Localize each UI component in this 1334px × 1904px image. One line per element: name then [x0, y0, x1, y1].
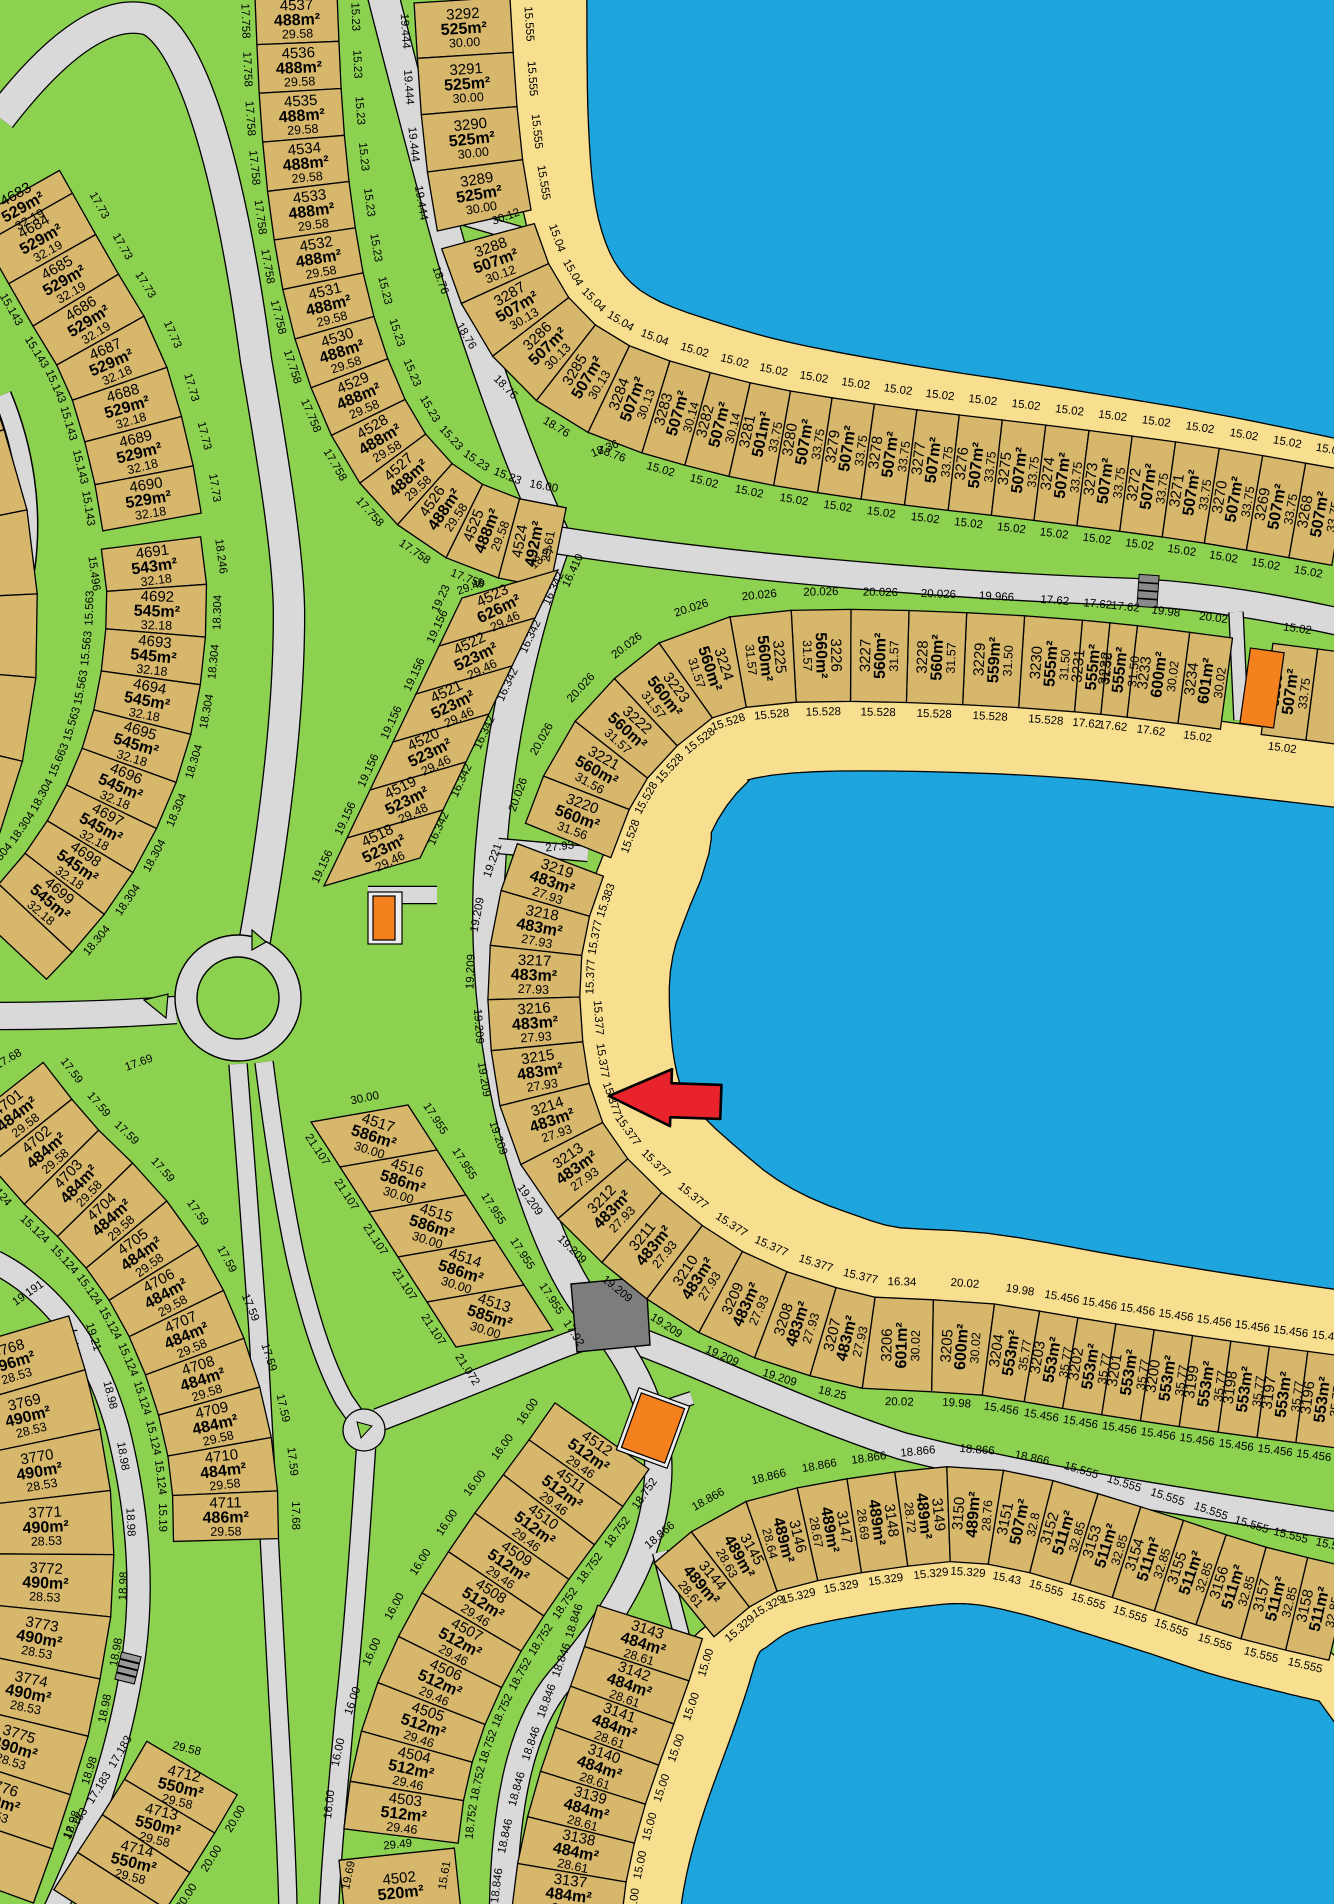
svg-text:29.58: 29.58 [282, 26, 314, 41]
svg-text:27.93: 27.93 [520, 1029, 552, 1045]
svg-text:19.444: 19.444 [398, 13, 412, 49]
svg-text:15.555: 15.555 [525, 61, 539, 97]
svg-text:15.00: 15.00 [626, 1888, 641, 1904]
svg-text:17.758: 17.758 [243, 101, 257, 137]
svg-text:30.02: 30.02 [967, 1332, 983, 1364]
svg-text:15.329: 15.329 [950, 1566, 986, 1581]
svg-text:15.528: 15.528 [806, 706, 841, 719]
svg-text:31.50: 31.50 [1000, 645, 1016, 677]
svg-text:31.50: 31.50 [1098, 652, 1115, 684]
svg-text:15.377: 15.377 [591, 1000, 605, 1036]
svg-text:20.026: 20.026 [921, 588, 957, 601]
svg-text:20.02: 20.02 [950, 1277, 980, 1291]
svg-text:28.76: 28.76 [979, 1499, 995, 1531]
svg-text:17.758: 17.758 [240, 51, 254, 87]
svg-text:30.00: 30.00 [449, 35, 481, 51]
svg-text:18.866: 18.866 [959, 1443, 995, 1458]
svg-text:18.304: 18.304 [211, 594, 224, 630]
svg-text:28.53: 28.53 [29, 1589, 61, 1605]
svg-text:29.58: 29.58 [210, 1524, 242, 1538]
svg-text:15.555: 15.555 [522, 6, 536, 42]
svg-text:30.02: 30.02 [908, 1330, 923, 1362]
svg-text:30.00: 30.00 [452, 90, 484, 106]
svg-text:18.98: 18.98 [117, 1571, 130, 1600]
svg-text:19.209: 19.209 [464, 954, 477, 990]
svg-text:19.98: 19.98 [942, 1397, 972, 1411]
svg-text:31.50: 31.50 [1057, 649, 1073, 681]
svg-text:19.209: 19.209 [471, 1008, 485, 1044]
svg-text:15.528: 15.528 [916, 708, 952, 721]
svg-text:17.68: 17.68 [289, 1501, 301, 1530]
svg-text:20.02: 20.02 [885, 1396, 914, 1409]
svg-text:19.444: 19.444 [401, 69, 415, 106]
svg-text:27.93: 27.93 [517, 982, 549, 997]
svg-text:17.62: 17.62 [1040, 594, 1070, 608]
svg-text:15.23: 15.23 [348, 2, 361, 31]
svg-text:28.53: 28.53 [30, 1533, 62, 1548]
svg-text:20.026: 20.026 [803, 586, 838, 599]
svg-text:29.58: 29.58 [287, 122, 319, 138]
svg-text:15.23: 15.23 [350, 50, 363, 79]
svg-text:15.23: 15.23 [352, 96, 366, 126]
svg-text:15.563: 15.563 [83, 590, 96, 626]
svg-text:31.57: 31.57 [887, 640, 902, 672]
svg-text:15.377: 15.377 [584, 959, 597, 995]
svg-text:18.98: 18.98 [123, 1508, 136, 1537]
svg-text:15.528: 15.528 [972, 710, 1008, 724]
svg-text:15.19: 15.19 [156, 1503, 168, 1532]
svg-text:19.966: 19.966 [979, 590, 1015, 604]
svg-text:20.026: 20.026 [863, 586, 898, 599]
svg-text:32.18: 32.18 [141, 618, 173, 633]
svg-text:17.758: 17.758 [238, 3, 251, 39]
svg-text:31.57: 31.57 [800, 640, 815, 672]
svg-text:31.57: 31.57 [944, 642, 959, 674]
svg-text:15.528: 15.528 [860, 706, 895, 719]
svg-text:16.34: 16.34 [887, 1276, 917, 1289]
svg-text:29.58: 29.58 [284, 74, 316, 89]
